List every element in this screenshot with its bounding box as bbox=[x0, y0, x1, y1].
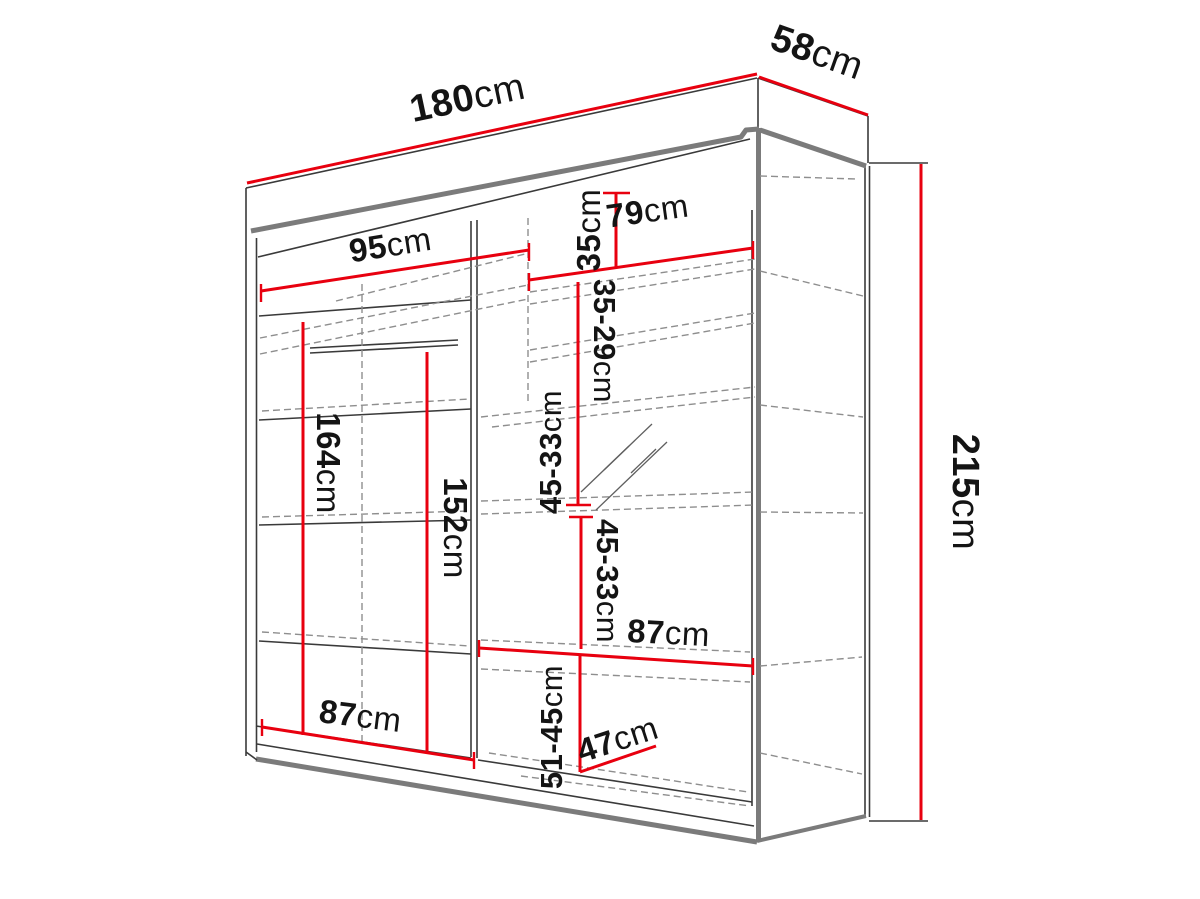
mid-shelf-gap-upper-value: 45-33 bbox=[533, 432, 568, 514]
right-section-width-unit: cm bbox=[641, 187, 691, 230]
bottom-left-width-value: 87 bbox=[317, 692, 359, 733]
width-value: 180 bbox=[406, 76, 478, 131]
dimension-label-left-hanging-height: 164cm bbox=[310, 412, 347, 514]
dimension-label-height: 215cm bbox=[944, 434, 986, 551]
diagram-canvas: 180cm 58cm 215cm 95cm 79cm 35cm 35-29cm … bbox=[0, 0, 1200, 899]
left-hanging-height-unit: cm bbox=[310, 469, 347, 514]
rod-height-value: 152 bbox=[437, 477, 474, 534]
bottom-left-width-unit: cm bbox=[355, 697, 404, 739]
dimension-label-bottom-left-width: 87cm bbox=[317, 692, 404, 739]
dimension-label-rod-height: 152cm bbox=[437, 477, 474, 579]
wardrobe-dimension-diagram: 180cm 58cm 215cm 95cm 79cm 35cm 35-29cm … bbox=[0, 0, 1200, 899]
dimension-label-right-shelf-width: 87cm bbox=[626, 612, 711, 653]
bottom-shelf-gap-unit: cm bbox=[534, 665, 569, 707]
left-section-width-unit: cm bbox=[384, 220, 434, 264]
rod-height-unit: cm bbox=[437, 534, 474, 579]
dimension-label-top-shelf-gap: 35cm bbox=[570, 189, 607, 272]
top-shelf-gap-unit: cm bbox=[570, 189, 607, 234]
upper-shelf-gap-value: 35-29 bbox=[587, 279, 622, 361]
dimension-label-mid-shelf-gap-lower: 45-33cm bbox=[590, 519, 625, 643]
right-shelf-width-value: 87 bbox=[626, 612, 666, 651]
left-section-width-value: 95 bbox=[346, 227, 389, 269]
left-hanging-height-value: 164 bbox=[310, 412, 347, 469]
height-unit: cm bbox=[944, 499, 986, 551]
mid-shelf-gap-upper-unit: cm bbox=[533, 390, 568, 432]
upper-shelf-gap-unit: cm bbox=[587, 361, 622, 403]
dimension-label-bottom-shelf-gap: 51-45cm bbox=[534, 665, 569, 789]
mid-shelf-gap-lower-unit: cm bbox=[590, 601, 625, 643]
right-shelf-width-unit: cm bbox=[664, 614, 711, 653]
dimension-label-left-section-width: 95cm bbox=[346, 220, 433, 269]
width-unit: cm bbox=[470, 66, 529, 118]
dimension-label-upper-shelf-gap: 35-29cm bbox=[587, 279, 622, 403]
top-shelf-gap-value: 35 bbox=[570, 234, 607, 272]
mid-shelf-gap-lower-value: 45-33 bbox=[590, 519, 625, 601]
height-value: 215 bbox=[944, 434, 986, 499]
bottom-shelf-gap-value: 51-45 bbox=[534, 707, 569, 789]
dimension-label-depth: 58cm bbox=[765, 17, 869, 88]
dimension-label-mid-shelf-gap-upper: 45-33cm bbox=[533, 390, 568, 514]
right-section-width-value: 79 bbox=[604, 193, 647, 235]
dimension-label-width: 180cm bbox=[406, 66, 529, 131]
usable-depth-unit: cm bbox=[608, 709, 662, 758]
